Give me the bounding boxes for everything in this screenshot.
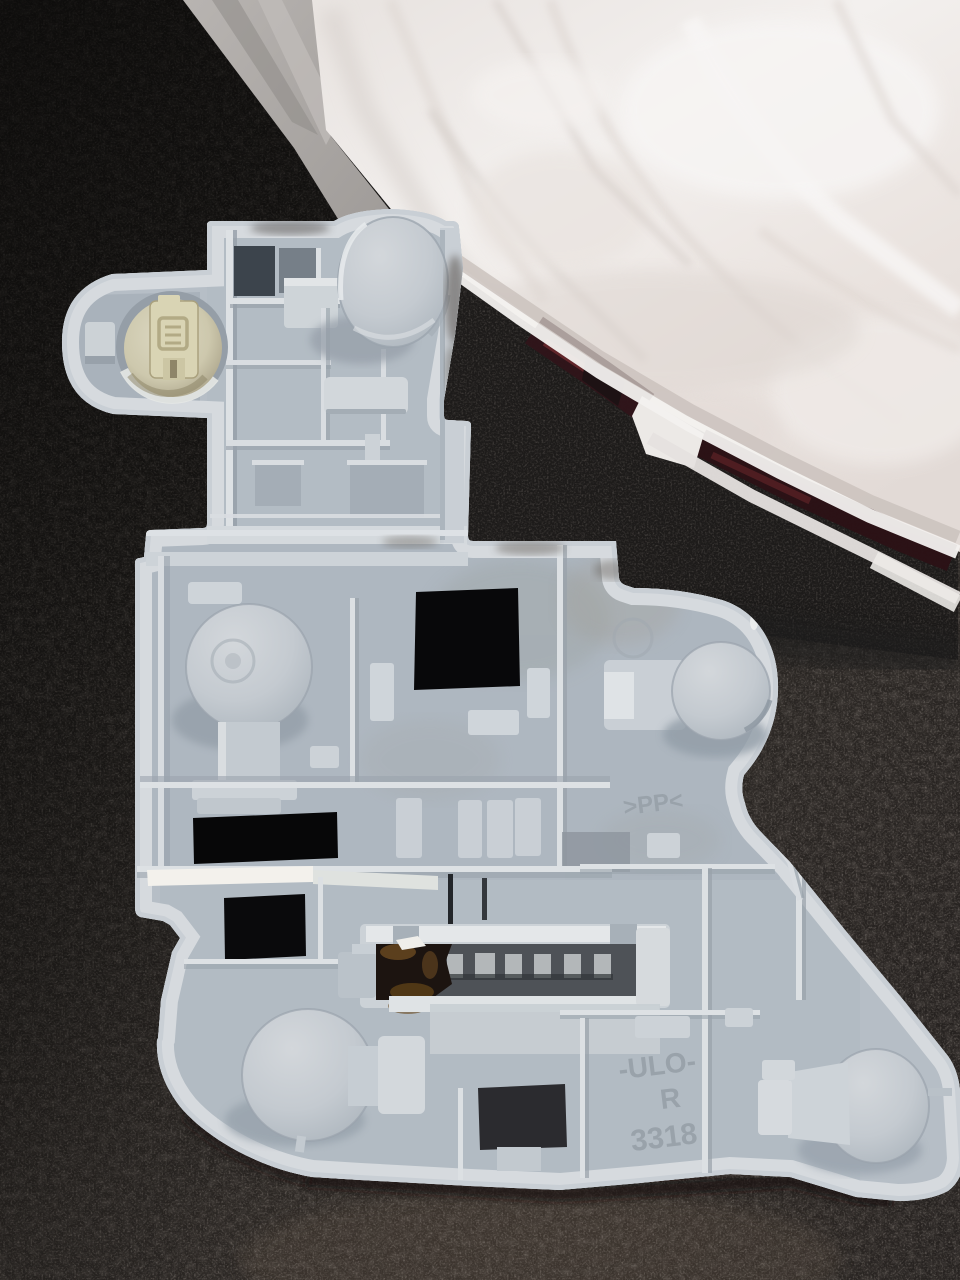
svg-text:R: R: [658, 1082, 682, 1115]
